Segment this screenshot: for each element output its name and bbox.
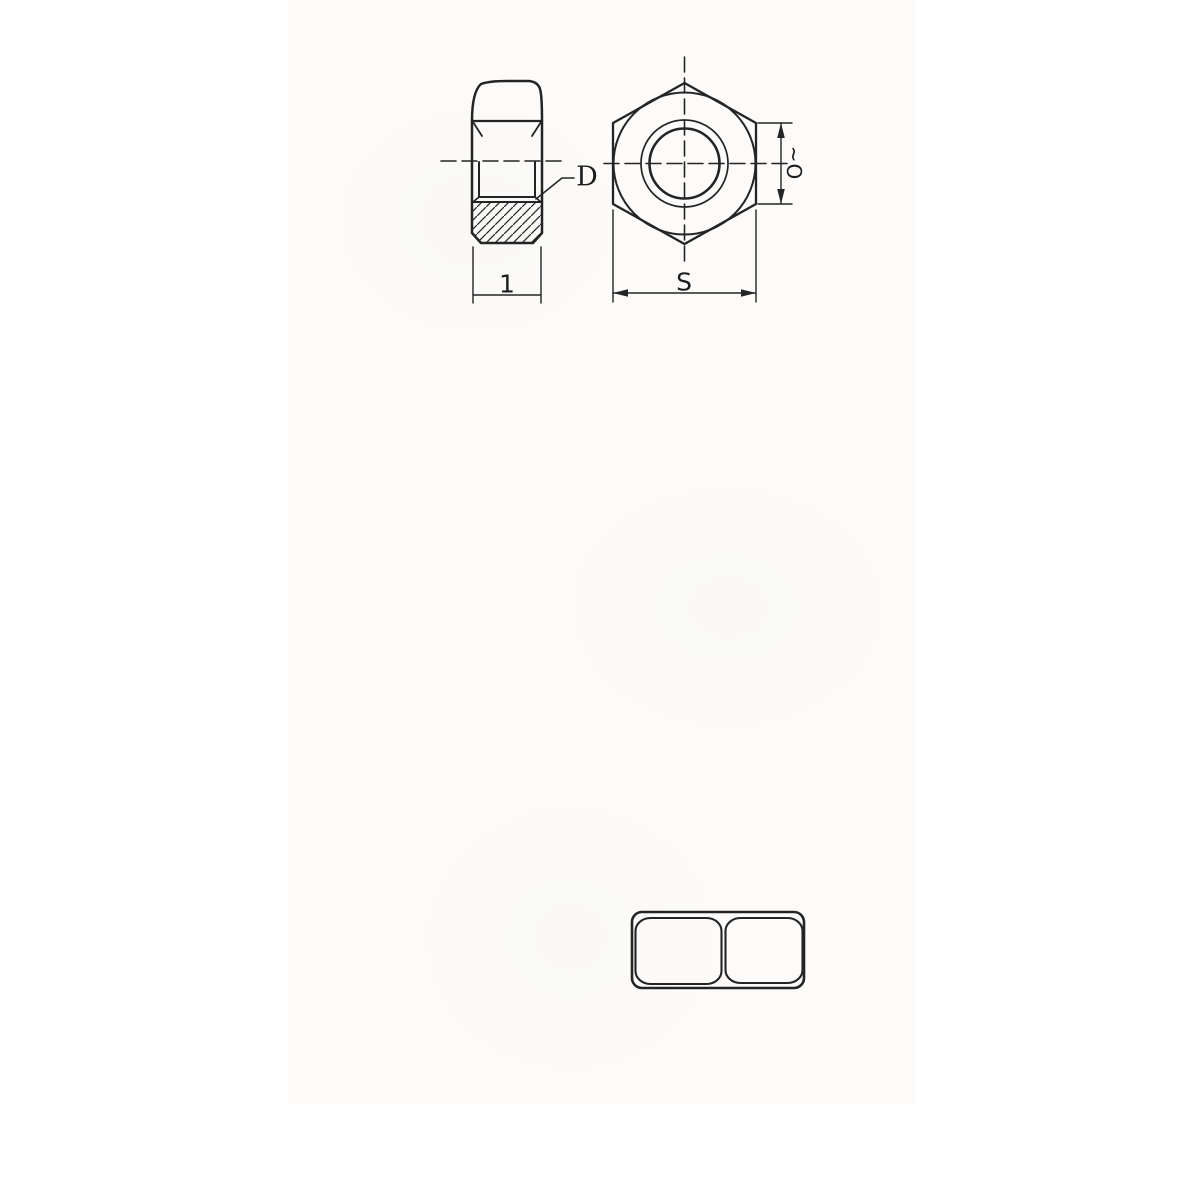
chamfer-arrow-bottom: [777, 189, 785, 204]
height-dimension-label: 1: [499, 272, 515, 297]
across-flats-dimension-label: S: [676, 270, 692, 295]
thread-callout-label: D: [576, 164, 598, 191]
side-section-view: [472, 81, 574, 243]
s-arrow-right: [741, 289, 756, 297]
s-arrow-left: [613, 289, 628, 297]
left-chamfer-diagonal: [473, 122, 482, 136]
side-elevation-view: [632, 912, 804, 988]
elevation-right-face: [726, 918, 803, 983]
chamfer-arrow-top: [777, 123, 785, 138]
chamfer-dimension-label: ~O: [784, 146, 804, 181]
hex-nut-technical-drawing: [0, 0, 1200, 1200]
section-hatch-area: [472, 202, 542, 243]
right-chamfer-diagonal: [532, 122, 541, 136]
elevation-left-face: [636, 918, 722, 984]
